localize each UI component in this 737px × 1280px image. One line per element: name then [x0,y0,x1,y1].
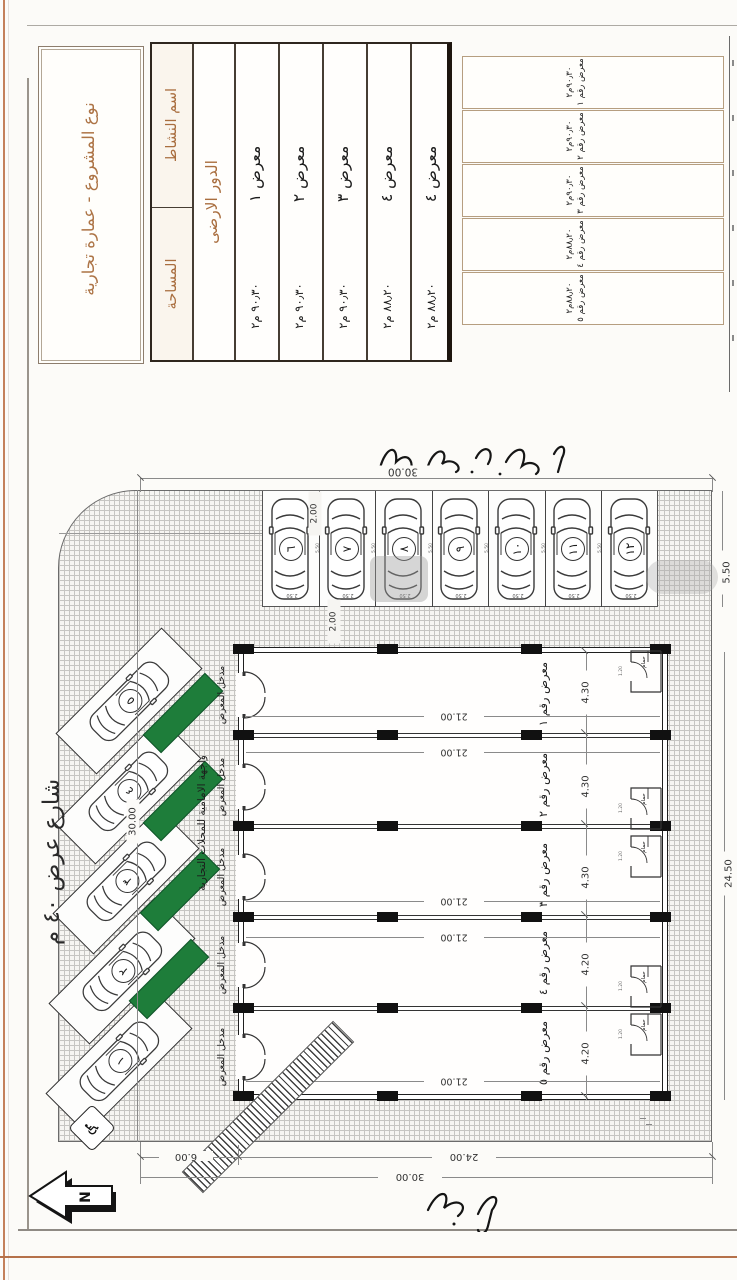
door-swing-icon [242,1033,268,1081]
unit-schedule-box: ٨٨٫٢٠م٢ معرض رقم ٥ [462,272,724,325]
unit-schedule-box: ٩٠٫٣٠م٢ معرض رقم ١ [462,56,724,109]
building-width-dim: 24.00 [432,1151,496,1161]
column [377,1091,398,1101]
column [233,1003,254,1013]
north-arrow-icon: N [24,1160,118,1228]
column [650,912,671,922]
site-depth-dim: 30.00 [127,800,140,844]
parking-number: ١٢ [618,537,642,561]
bathroom-dim: 1.20 [618,844,626,868]
table-row-area: ٨٨٫٢٠ م٢ [379,156,397,456]
truncated-text-mark [732,335,734,341]
truncated-title-strip-line [729,36,730,392]
building-bottom-wall [238,1094,668,1100]
parking-number: ٩ [448,537,472,561]
unit-area: ٨٨٫٢٠م٢ [565,283,576,314]
bay-dim-text: 21.00 [424,747,484,757]
bathroom-dim: 1.20 [618,659,626,683]
depth-dim-text: 4.30 [580,765,593,809]
column [377,730,398,740]
showroom-divider-wall [244,915,662,920]
stall-width-dim: 2.50 [447,592,475,597]
top-dim-line [140,478,712,479]
building-top-wall [238,647,668,653]
stall-depth-dim: 5.50 [597,536,605,560]
stall-width-dim: 2.50 [334,592,362,597]
bay-dim-text: 21.00 [424,896,484,906]
column [233,821,254,831]
site-width-dim: 30.00 [371,466,435,477]
table-row-area: ٩٠٫٣٠ م٢ [291,156,309,456]
parking-depth-dim: 5.50 [721,551,734,595]
north-letter: N [78,1191,94,1203]
bathroom-label: حمام [641,965,649,989]
bay-dim-text: 21.00 [424,711,484,721]
table-row-area: ٨٨٫٢٠ م٢ [423,156,441,456]
column [233,644,254,654]
column [233,912,254,922]
truncated-text-mark [732,170,734,176]
stall-width-dim: 2.50 [278,592,306,597]
building-depth-dim: 24.50 [723,852,736,896]
stall-width-dim: 2.50 [504,592,532,597]
stall-width-dim: 2.50 [560,592,588,597]
door-swing-icon [242,763,268,811]
column [650,730,671,740]
depth-dim-text: 4.30 [580,671,593,715]
frame-bottom-line [18,1229,737,1231]
setback-dim-text: 2.00 [309,492,322,536]
street-label: شارع عرض ٤٠ م [39,712,65,1012]
bathroom-label: حمام [641,650,649,674]
drawing-sheet: نوع المشروع - عمارة تجارية اسم النشاط ال… [0,0,737,1280]
parking-number: ١٠ [505,537,529,561]
stall-width-dim: 2.50 [617,592,645,597]
bathroom-label: حمام [641,1013,649,1037]
frame-left-line [27,78,29,1230]
truncated-text-mark [732,225,734,231]
project-type-label: نوع المشروع - عمارة تجارية [80,49,98,349]
showroom-divider-wall [244,733,662,738]
bottom-dim-line-1 [140,1157,712,1158]
table-column-divider [278,44,280,360]
column [377,821,398,831]
parking-number: ٦ [279,537,303,561]
unit-schedule-box: ٨٨٫٢٠م٢ معرض رقم ٤ [462,218,724,271]
stall-depth-dim: 5.50 [484,536,492,560]
side-strip-dim: 6.00 [159,1151,213,1161]
showroom-label: معرض رقم ٥ [535,903,553,1203]
bathroom-label: حمام [641,787,649,811]
showroom-divider-wall [244,824,662,829]
parking-number: ١١ [561,537,585,561]
bottom-brown-rule [0,1256,737,1258]
stall-depth-dim: 5.50 [428,536,436,560]
parking-number: ٧ [335,537,359,561]
table-row-area: ٩٠٫٣٠ م٢ [335,156,353,456]
depth-dim-text: 4.20 [580,943,593,987]
bathroom-dim: 1.20 [618,974,626,998]
table-column-divider [410,44,412,360]
truncated-text-mark [732,280,734,286]
depth-dim-text: 4.20 [580,1032,593,1076]
project-type-box: نوع المشروع - عمارة تجارية [38,46,144,364]
table-column-divider [366,44,368,360]
column [377,644,398,654]
watermark [370,556,428,602]
bay-dim-text: 21.00 [424,932,484,942]
column [377,912,398,922]
table-floor-label: الدور الارضى [204,52,222,352]
table-column-divider [322,44,324,360]
area-table: اسم النشاط المساحة الدور الارضى معرض ١ ٩… [150,42,452,362]
column [233,730,254,740]
door-swing-icon [242,853,268,901]
showroom-divider-wall [244,1006,662,1011]
table-column-divider [192,44,194,360]
handwritten-signature [418,1180,513,1232]
top-dim-ext [712,478,713,492]
walkway-dim-text: 2.00 [328,600,341,644]
table-column-divider [234,44,236,360]
column [650,1091,671,1101]
column [233,1091,254,1101]
bathroom-label: حمام [641,835,649,859]
setback-line [59,533,262,534]
unit-schedule-box: ٩٠٫٣٠م٢ معرض رقم ٢ [462,110,724,163]
unit-schedule-box: ٩٠٫٣٠م٢ معرض رقم ٣ [462,164,724,217]
building-right-wall [662,647,668,1100]
top-dim-ext [140,478,141,492]
depth-dim-text: 4.30 [580,856,593,900]
bay-dim-text: 21.00 [424,1076,484,1086]
door-swing-icon [242,671,268,719]
door-swing-icon [242,941,268,989]
table-row-area: ٩٠٫٣٠ م٢ [247,156,265,456]
bathroom-dim: 1.20 [618,1022,626,1046]
north-letter-bind: N [52,1047,70,1280]
unit-schedule-text: ٨٨٫٢٠م٢ معرض رقم ٥ [562,148,590,448]
tiny-dimension-mark [640,1118,646,1119]
unit-name: معرض رقم ٥ [576,274,587,321]
truncated-text-mark [732,60,734,66]
watermark [646,560,718,594]
tiny-dimension-mark [646,1124,652,1125]
bottom-dim-ext [712,1142,713,1184]
facade-label: واجهة الامامية للمحلات التجارية [193,673,211,973]
stall-depth-dim: 5.50 [315,536,323,560]
sheet-edge-line-2 [8,0,9,1280]
bathroom-dim: 1.20 [618,796,626,820]
column [377,1003,398,1013]
table-header-area: المساحة [163,134,181,434]
sheet-edge-line [3,0,5,1280]
entrance-label: مدخل المعرض [213,907,231,1207]
truncated-text-mark [732,115,734,121]
